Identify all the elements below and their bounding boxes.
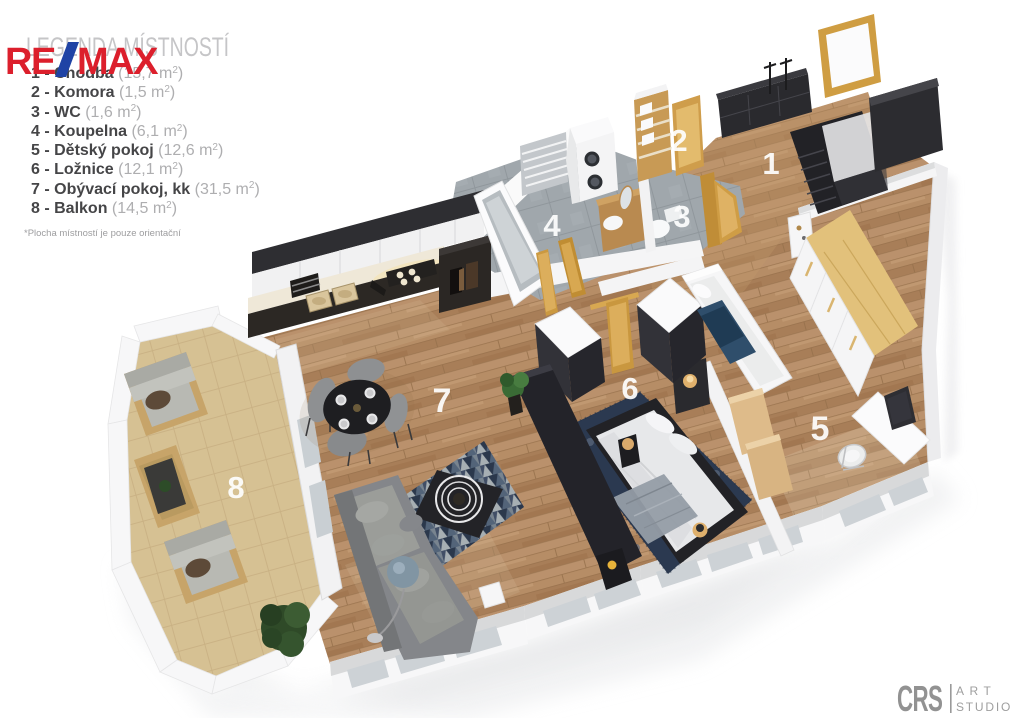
- svg-text:CRS: CRS: [897, 680, 942, 718]
- svg-text:5: 5: [811, 410, 830, 448]
- svg-text:6: 6: [621, 371, 638, 406]
- svg-text:7: 7: [433, 382, 452, 420]
- svg-text:RE: RE: [5, 41, 55, 83]
- svg-text:8: 8: [227, 470, 244, 505]
- svg-text:4: 4: [543, 208, 561, 243]
- svg-text:ART: ART: [956, 684, 996, 698]
- svg-text:2: 2: [670, 123, 687, 158]
- svg-text:1: 1: [762, 146, 779, 181]
- svg-text:3: 3: [673, 199, 690, 234]
- svg-text:STUDIO: STUDIO: [956, 700, 1012, 714]
- svg-text:MAX: MAX: [77, 41, 159, 83]
